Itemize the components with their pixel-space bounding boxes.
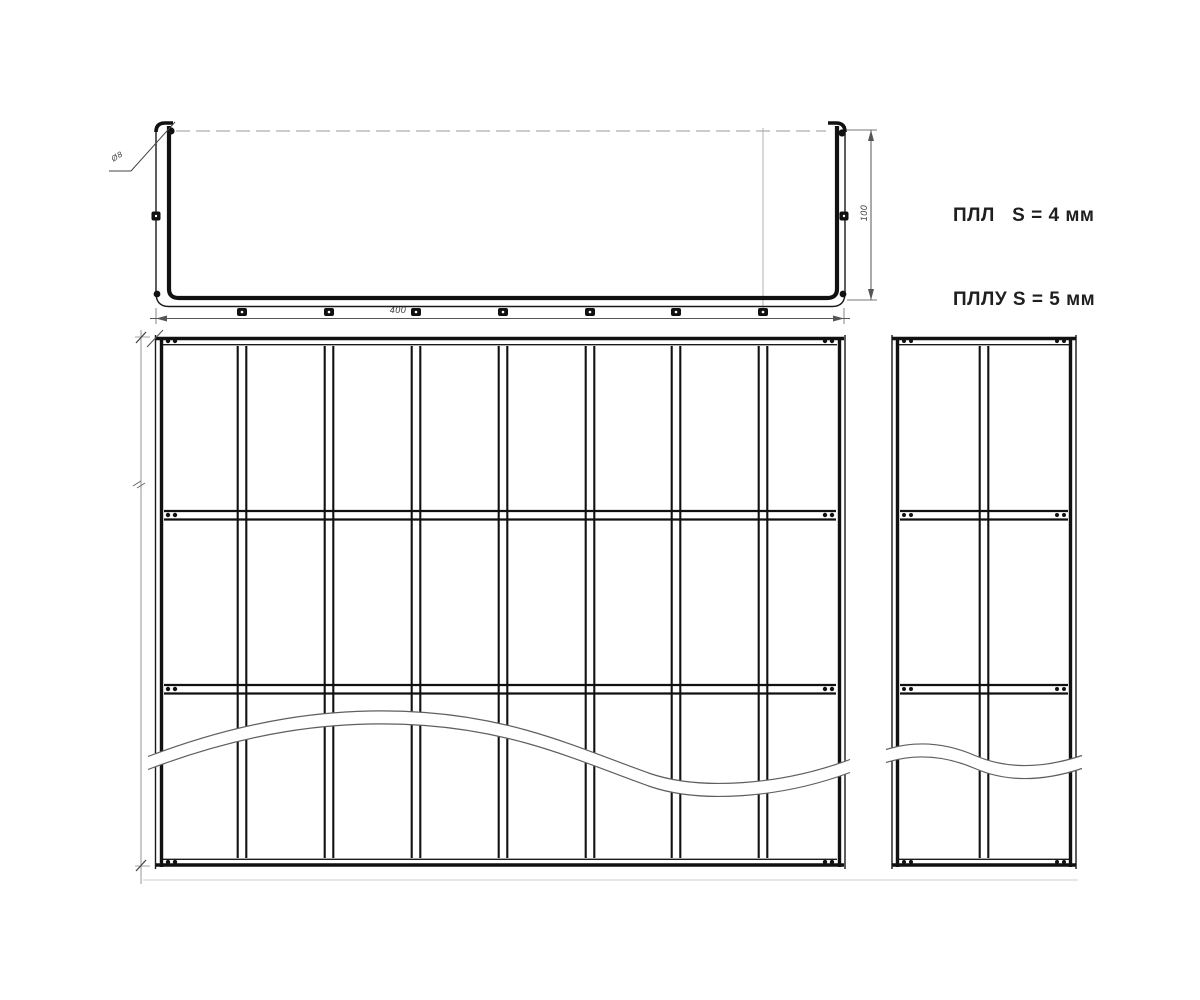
channel-inner-contour <box>169 126 837 298</box>
cross-rails <box>900 511 1068 694</box>
bolt-icon <box>840 291 847 298</box>
side-elevation-view <box>109 122 877 324</box>
plan-side-grid <box>892 335 1076 869</box>
technical-drawing-canvas: ПЛЛ S = 4 мм ПЛЛУ S = 5 мм 400 100 Ø8 <box>0 0 1200 1000</box>
drawing-page: { "spec_note": { "line1": "ПЛЛ S = 4 мм"… <box>0 0 1200 1000</box>
break-lines <box>148 711 1082 797</box>
width-dimension-label: 400 <box>378 305 418 315</box>
spec-line-2: ПЛЛУ S = 5 мм <box>953 286 1095 314</box>
bolt-center <box>843 215 845 217</box>
length-dimension <box>133 330 1078 884</box>
cross-rails <box>164 511 836 694</box>
bolt-icon <box>154 291 161 298</box>
spec-note: ПЛЛ S = 4 мм ПЛЛУ S = 5 мм <box>953 146 1095 370</box>
leader-line <box>109 122 175 171</box>
rivet-dots <box>902 339 1066 864</box>
spec-line-1: ПЛЛ S = 4 мм <box>953 202 1095 230</box>
bolt-icon <box>838 129 845 136</box>
height-dimension-label: 100 <box>859 199 869 227</box>
bottom-rivets <box>237 308 768 316</box>
break-band <box>886 750 1082 772</box>
rungs <box>980 346 989 858</box>
channel-outer-contour <box>156 126 845 307</box>
bolt-icon <box>167 127 174 134</box>
bolt-center <box>155 215 157 217</box>
